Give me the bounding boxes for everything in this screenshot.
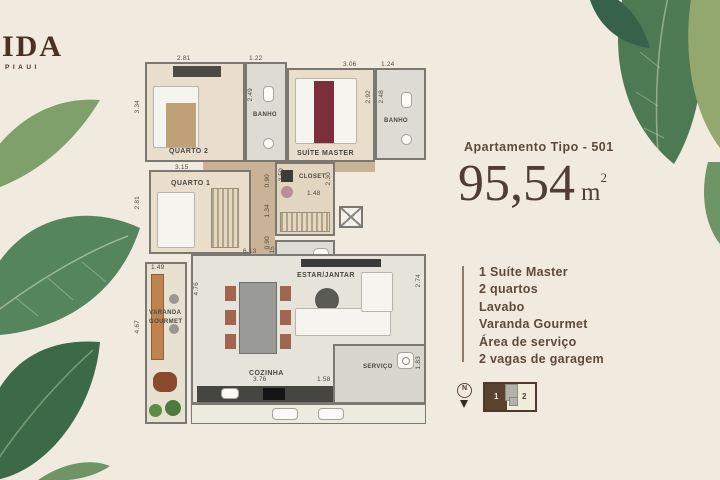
- dim-closet-width: 1.48: [307, 190, 320, 197]
- dining-chair: [280, 334, 291, 349]
- room-label-banho1: BANHO: [253, 112, 277, 118]
- dining-chair: [225, 310, 236, 325]
- brand-logo-title: IDA: [2, 30, 63, 64]
- ac-unit: [272, 408, 298, 420]
- area-number: 95,54: [458, 155, 575, 212]
- leaf-decoration-left: [0, 78, 163, 480]
- compass-icon: N: [457, 383, 472, 398]
- dim-servico-width: 1.58: [317, 376, 330, 383]
- cooktop: [263, 388, 285, 400]
- feature-item: Área de serviço: [479, 334, 604, 351]
- room-banho2: BANHO: [375, 68, 426, 160]
- dim-banho1-height: 2.49: [247, 88, 254, 101]
- room-label-varanda-line2: GOURMET: [149, 319, 182, 325]
- dim-hall-2: 1.34: [264, 204, 271, 217]
- dim-estar-height: 2.74: [415, 274, 422, 287]
- floor-plan: QUARTO 2 2.81 3.34 BANHO 1.22 2.49 SUÍTE…: [145, 56, 426, 428]
- dim-varanda-height: 4.67: [134, 320, 141, 333]
- bed: [153, 86, 199, 148]
- area-unit: m2: [581, 179, 607, 206]
- room-label-varanda-line1: VARANDA: [149, 310, 181, 316]
- compass-north-letter: N: [458, 385, 471, 392]
- dim-banho2-height: 2.48: [378, 90, 385, 103]
- keyplan: 1 2: [483, 382, 537, 412]
- room-label-suite: SUÍTE MASTER: [297, 150, 354, 157]
- feature-list-divider: [462, 266, 464, 362]
- feature-list: 1 Suíte Master 2 quartos Lavabo Varanda …: [479, 264, 604, 368]
- toilet: [401, 92, 412, 108]
- gourmet-counter: [151, 274, 164, 360]
- dim-suite-height: 2.92: [365, 90, 372, 103]
- shaft: [339, 206, 363, 228]
- dim-counter-width: 3.76: [253, 376, 266, 383]
- dim-varanda-width: 1.49: [151, 264, 164, 271]
- room-label-banho2: BANHO: [384, 118, 408, 124]
- washer-door: [402, 357, 410, 365]
- dining-chair: [225, 334, 236, 349]
- terrace-strip: [191, 404, 426, 424]
- dim-closet-height-right: 2.30: [325, 172, 332, 185]
- plant: [165, 400, 181, 416]
- dim-suite-width: 3.06: [343, 61, 356, 68]
- dim-closet-height-left: 2.50: [278, 168, 285, 181]
- sink: [263, 138, 274, 149]
- keyplan-unit2-label: 2: [522, 392, 526, 401]
- dim-servico-height: 1.83: [415, 356, 422, 369]
- brand-logo-subtitle: PIAUI: [5, 64, 40, 71]
- stool: [169, 324, 179, 334]
- stool: [169, 294, 179, 304]
- kitchen-sink: [221, 388, 239, 399]
- room-servico: SERVIÇO: [333, 344, 426, 404]
- feature-item: 1 Suíte Master: [479, 264, 604, 281]
- page: IDA PIAUI QUARTO 2 2.81 3.34 BANHO 1.22 …: [0, 0, 720, 480]
- feature-item: 2 quartos: [479, 281, 604, 298]
- suite-bed-runner: [314, 81, 334, 143]
- suite-bed: [295, 78, 357, 144]
- wardrobe: [211, 188, 239, 248]
- closet-wardrobe: [280, 212, 330, 232]
- dim-banho1-width: 1.22: [249, 55, 262, 62]
- dim-cozinha-height: 4.76: [193, 282, 200, 295]
- room-label-closet: CLOSET: [299, 174, 326, 180]
- room-quarto2: QUARTO 2: [145, 62, 245, 162]
- room-suite-master: SUÍTE MASTER: [287, 68, 375, 162]
- room-label-quarto1: QUARTO 1: [171, 180, 210, 187]
- dining-table: [239, 282, 277, 354]
- sink: [401, 134, 412, 145]
- feature-item: Lavabo: [479, 299, 604, 316]
- area-value: 95,54m2: [458, 152, 607, 219]
- keyplan-core: [509, 397, 518, 406]
- toilet: [263, 86, 274, 102]
- dining-chair: [280, 286, 291, 301]
- room-label-quarto2: QUARTO 2: [169, 148, 208, 155]
- tv-panel: [301, 259, 381, 267]
- room-banho1: BANHO: [245, 62, 287, 162]
- room-quarto1: QUARTO 1: [149, 170, 251, 254]
- plant: [149, 404, 162, 417]
- dim-cozinha-width: 6.13: [243, 248, 256, 255]
- washer: [397, 352, 414, 369]
- dim-banho2-width: 1.24: [381, 61, 394, 68]
- dim-hall-1: 0.90: [264, 174, 271, 187]
- dining-chair: [280, 310, 291, 325]
- room-label-estar: ESTAR/JANTAR: [297, 272, 355, 279]
- feature-item: 2 vagas de garagem: [479, 351, 604, 368]
- sofa-chaise: [361, 272, 393, 312]
- ac-unit: [318, 408, 344, 420]
- dim-quarto2-height: 3.34: [134, 100, 141, 113]
- room-varanda-gourmet: VARANDA GOURMET: [145, 262, 187, 424]
- feature-item: Varanda Gourmet: [479, 316, 604, 333]
- bed: [157, 192, 195, 248]
- bed-blanket: [166, 103, 196, 147]
- dim-quarto1-width: 3.15: [175, 164, 188, 171]
- dim-quarto2-width: 2.81: [177, 55, 190, 62]
- keyplan-unit1-label: 1: [494, 392, 498, 401]
- lounge-chair: [153, 372, 177, 392]
- leaf-decoration-right: [588, 0, 720, 254]
- compass-arrow-icon: [460, 400, 468, 408]
- closet-basket: [281, 186, 293, 198]
- room-label-servico: SERVIÇO: [363, 364, 393, 370]
- dining-chair: [225, 286, 236, 301]
- sofa: [295, 308, 391, 336]
- dim-quarto1-height: 2.81: [134, 196, 141, 209]
- wardrobe: [173, 66, 221, 77]
